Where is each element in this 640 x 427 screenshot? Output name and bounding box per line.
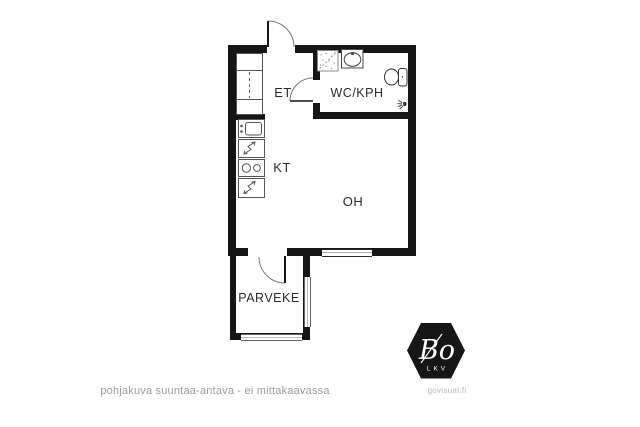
room-label-wc-kph: WC/KPH xyxy=(322,86,392,100)
toilet xyxy=(385,69,408,87)
room-label-oh: OH xyxy=(338,194,368,209)
shower-icon xyxy=(398,100,407,109)
fixtures-overlay xyxy=(0,0,640,427)
room-label-et: ET xyxy=(269,85,297,100)
bathroom-sink xyxy=(342,50,364,69)
agency-logo: Bo LKV xyxy=(406,321,466,381)
entrance-door xyxy=(268,21,294,47)
freezer xyxy=(239,179,265,198)
wardrobe xyxy=(237,54,263,115)
floorplan-canvas: ET WC/KPH KT OH PARVEKE pohjakuva suunta… xyxy=(0,0,640,427)
logo-main-text: Bo xyxy=(418,335,455,366)
washing-machine-reservation xyxy=(318,51,339,72)
balcony-door-arc xyxy=(259,257,285,283)
balcony-door xyxy=(259,256,285,283)
refrigerator xyxy=(239,140,265,158)
room-label-kt: KT xyxy=(268,160,296,175)
watermark-text: govisual.fi xyxy=(417,386,477,395)
entrance-door-arc xyxy=(268,21,294,47)
disclaimer-caption: pohjakuva suuntaa-antava - ei mittakaava… xyxy=(80,385,350,397)
logo-sub-text: LKV xyxy=(427,366,448,373)
stove xyxy=(239,160,265,177)
kitchen-sink xyxy=(239,120,265,138)
room-label-parveke: PARVEKE xyxy=(234,291,304,305)
